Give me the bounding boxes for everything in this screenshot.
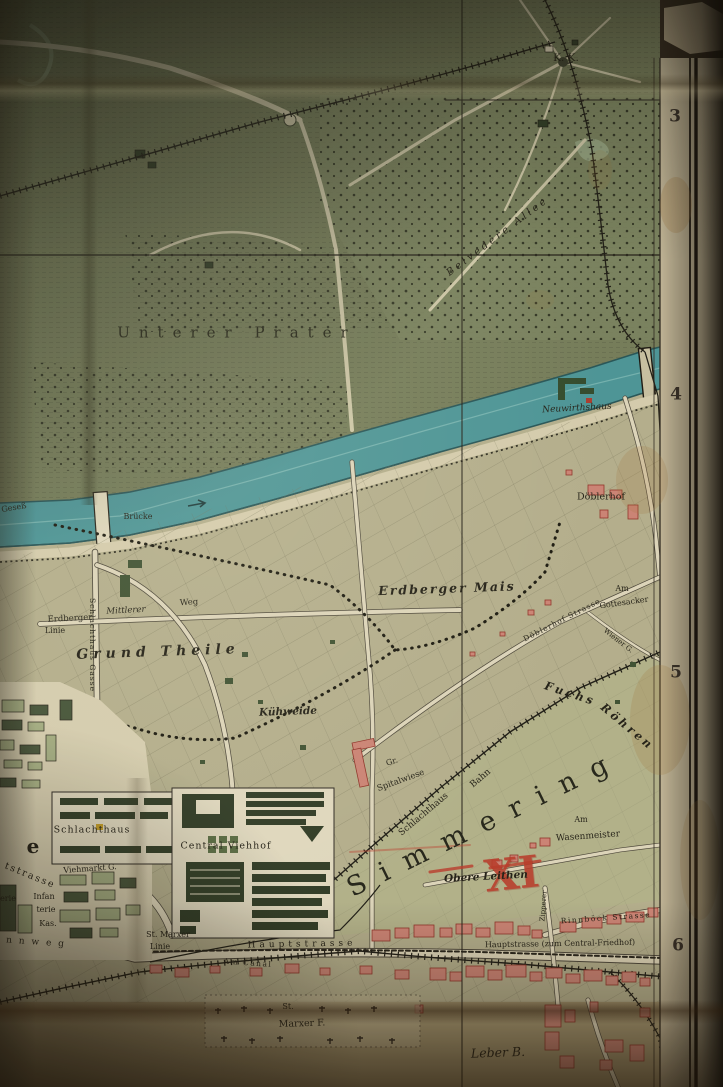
label-unterer-prater: Unterer Prater bbox=[117, 326, 356, 341]
label-infanterie-1: erie bbox=[0, 895, 16, 903]
label-linie-erdberger: Linie bbox=[45, 627, 65, 635]
grid-number-4: 4 bbox=[670, 387, 682, 404]
grid-number-3: 3 bbox=[669, 109, 681, 126]
label-infanterie-4: Kas. bbox=[39, 920, 56, 928]
label-kk: K. K. bbox=[553, 53, 579, 64]
label-central-viehhof: Central Viehhof bbox=[181, 841, 272, 851]
label-st-marxer: St. Marxer bbox=[146, 931, 190, 939]
label-infanterie-3: terie bbox=[36, 906, 55, 914]
label-mittlerer: Mittlerer bbox=[106, 606, 146, 617]
map-artwork bbox=[0, 0, 723, 1087]
sheet-margin bbox=[654, 0, 723, 1087]
label-infanterie-2: Infan bbox=[33, 893, 54, 901]
label-schlachthaus: Schlachthaus bbox=[54, 825, 131, 835]
label-doeblerhof: Döblerhof bbox=[577, 492, 625, 502]
antique-map-photo: Unterer Prater Belvedere Allee K. K. Neu… bbox=[0, 0, 723, 1087]
label-bruecke: Brücke bbox=[124, 513, 153, 521]
label-erdberger: Erdberger bbox=[47, 614, 92, 625]
central-viehhof-complex bbox=[172, 788, 334, 938]
grid-number-6: 6 bbox=[672, 938, 684, 955]
label-am-gottesacker-1: Am bbox=[615, 585, 628, 593]
label-hauptstrasse: Hauptstrasse bbox=[248, 940, 357, 951]
label-st-marxer-f-1: St. bbox=[282, 1003, 293, 1011]
label-st-marxer-f-2: Marxer F. bbox=[279, 1018, 326, 1029]
label-kuehweide: Kühweide bbox=[259, 706, 317, 719]
label-leber-b: Leber B. bbox=[471, 1046, 526, 1060]
label-linie-st-marxer: Linie bbox=[150, 943, 170, 951]
label-weg: Weg bbox=[180, 598, 199, 607]
label-schlachthaus-gasse: Schlachthaus Gasse bbox=[88, 598, 96, 692]
grid-number-5: 5 bbox=[670, 665, 682, 682]
label-letter-e: e bbox=[27, 836, 40, 856]
label-am-wasenmeister-1: Am bbox=[574, 816, 587, 824]
